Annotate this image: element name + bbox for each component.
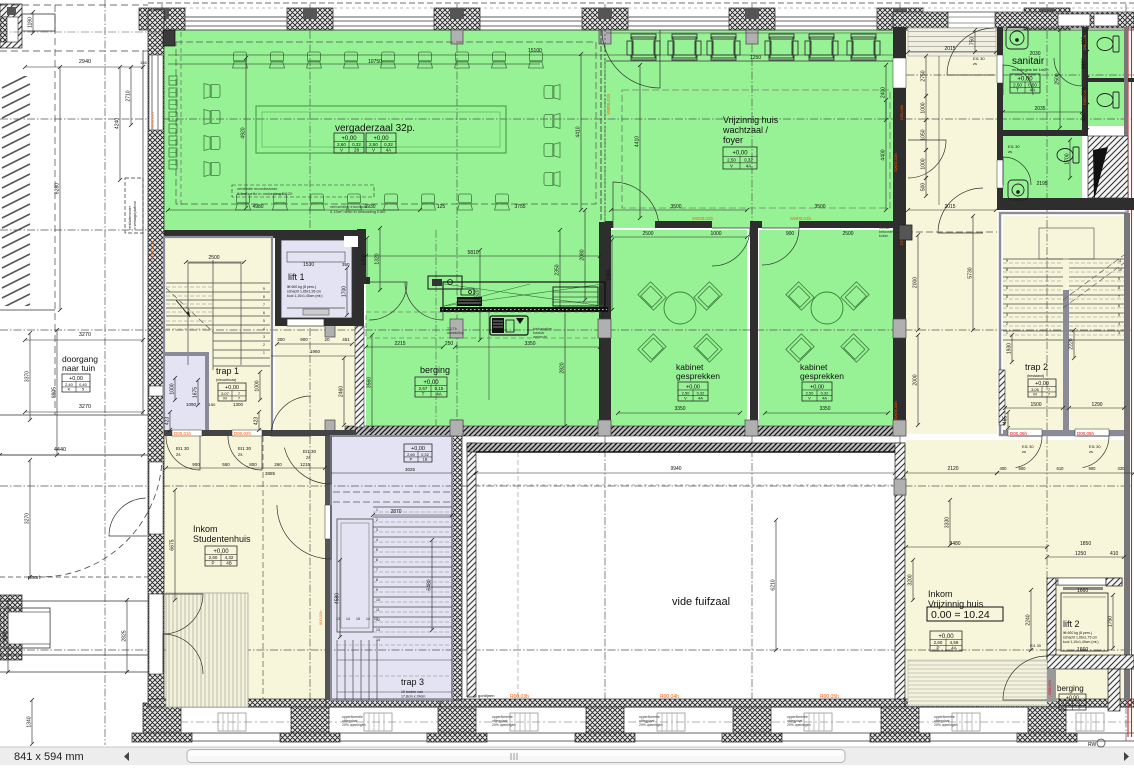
svg-text:10: 10 bbox=[1118, 268, 1122, 272]
svg-text:800: 800 bbox=[249, 462, 257, 467]
svg-text:2015: 2015 bbox=[944, 204, 955, 210]
svg-text:4: 4 bbox=[1006, 304, 1008, 308]
svg-text:1000: 1000 bbox=[170, 383, 176, 394]
svg-text:3270: 3270 bbox=[25, 513, 31, 524]
svg-text:Inkom: Inkom bbox=[193, 524, 218, 534]
svg-text:sanitair: sanitair bbox=[1012, 56, 1045, 67]
svg-text:zs: zs bbox=[306, 455, 311, 460]
svg-text:2015: 2015 bbox=[944, 46, 955, 52]
svg-text:+0,00: +0,00 bbox=[732, 150, 748, 156]
svg-text:610: 610 bbox=[1057, 466, 1065, 471]
svg-text:EI1 30: EI1 30 bbox=[1030, 644, 1041, 648]
svg-text:3: 3 bbox=[263, 335, 265, 339]
svg-text:zs: zs bbox=[176, 452, 181, 457]
svg-text:EI1 30: EI1 30 bbox=[303, 449, 317, 454]
svg-text:2: 2 bbox=[376, 518, 378, 522]
svg-text:2215: 2215 bbox=[394, 341, 405, 347]
svg-text:2940: 2940 bbox=[79, 59, 91, 65]
svg-text:3: 3 bbox=[1118, 331, 1120, 335]
svg-text:(bestaand): (bestaand) bbox=[1027, 374, 1044, 378]
svg-text:28: 28 bbox=[354, 148, 360, 153]
svg-text:2500: 2500 bbox=[642, 231, 653, 237]
svg-text:EI1 30: EI1 30 bbox=[238, 446, 252, 451]
svg-text:1: 1 bbox=[263, 351, 265, 355]
svg-text:330: 330 bbox=[1118, 466, 1126, 471]
svg-text:lift 600 kg (8 pers.): lift 600 kg (8 pers.) bbox=[287, 285, 316, 289]
svg-text:2030: 2030 bbox=[1029, 51, 1040, 57]
svg-text:14: 14 bbox=[376, 638, 380, 642]
svg-text:900: 900 bbox=[1089, 466, 1097, 471]
svg-text:451: 451 bbox=[342, 337, 350, 342]
svg-text:D00,05h: D00,05h bbox=[1077, 431, 1095, 436]
svg-text:in verlaagd plafond: in verlaagd plafond bbox=[133, 201, 137, 230]
svg-text:gesprekken: gesprekken bbox=[676, 371, 720, 381]
svg-text:1930: 1930 bbox=[1007, 343, 1013, 354]
svg-text:1050: 1050 bbox=[921, 129, 927, 140]
svg-text:1700: 1700 bbox=[342, 286, 348, 297]
svg-text:EI1 30: EI1 30 bbox=[176, 446, 190, 451]
svg-text:15: 15 bbox=[356, 617, 360, 621]
svg-text:+0,00: +0,00 bbox=[373, 136, 389, 142]
svg-text:400: 400 bbox=[1082, 37, 1088, 46]
svg-text:8: 8 bbox=[263, 295, 265, 299]
svg-text:0,32: 0,32 bbox=[384, 142, 393, 147]
svg-text:(nieuwbouw): (nieuwbouw) bbox=[216, 378, 236, 382]
svg-text:19 treden van: 19 treden van bbox=[401, 690, 423, 694]
svg-text:+0,00: +0,00 bbox=[938, 634, 954, 640]
svg-text:kooi 1,10x1,40cm (mt.): kooi 1,10x1,40cm (mt.) bbox=[287, 294, 323, 298]
svg-text:3560: 3560 bbox=[367, 377, 373, 388]
svg-text:P: P bbox=[936, 646, 939, 651]
svg-text:zs: zs bbox=[1008, 149, 1012, 154]
svg-text:Inkom: Inkom bbox=[928, 589, 953, 599]
svg-text:423: 423 bbox=[254, 417, 260, 426]
svg-text:SW00,01b: SW00,01b bbox=[790, 216, 812, 221]
svg-text:410: 410 bbox=[1110, 551, 1119, 557]
svg-text:800: 800 bbox=[1082, 87, 1088, 96]
svg-text:13: 13 bbox=[376, 628, 380, 632]
svg-text:3200: 3200 bbox=[908, 574, 914, 585]
svg-text:1500: 1500 bbox=[1030, 402, 1041, 408]
svg-text:900: 900 bbox=[192, 462, 200, 467]
svg-text:R00,04h: R00,04h bbox=[660, 694, 679, 700]
svg-text:20% openingen: 20% openingen bbox=[934, 723, 958, 727]
svg-text:14: 14 bbox=[346, 617, 350, 621]
svg-text:9: 9 bbox=[1006, 259, 1008, 263]
svg-text:poort: poort bbox=[28, 575, 41, 581]
svg-text:1750: 1750 bbox=[1108, 616, 1114, 627]
svg-text:2: 2 bbox=[263, 343, 265, 347]
svg-text:2: 2 bbox=[1006, 322, 1008, 326]
svg-text:4: 4 bbox=[1118, 322, 1120, 326]
svg-text:2035: 2035 bbox=[1034, 106, 1045, 112]
svg-text:D00,02h: D00,02h bbox=[234, 431, 252, 436]
svg-text:465: 465 bbox=[1003, 416, 1009, 425]
svg-text:SW00,04h: SW00,04h bbox=[893, 401, 898, 420]
svg-text:1930: 1930 bbox=[364, 204, 375, 210]
svg-text:1: 1 bbox=[376, 508, 378, 512]
svg-text:1340: 1340 bbox=[27, 716, 33, 727]
svg-text:3: 3 bbox=[376, 528, 378, 532]
svg-text:3370: 3370 bbox=[25, 371, 31, 382]
svg-text:10: 10 bbox=[376, 598, 380, 602]
svg-text:2400: 2400 bbox=[881, 87, 887, 98]
svg-text:900: 900 bbox=[786, 231, 795, 237]
svg-text:2,50: 2,50 bbox=[727, 158, 736, 163]
svg-text:900: 900 bbox=[1019, 466, 1027, 471]
svg-text:+0,00: +0,00 bbox=[341, 136, 357, 142]
svg-text:1000: 1000 bbox=[921, 102, 927, 113]
svg-text:6: 6 bbox=[376, 558, 378, 562]
svg-text:6280: 6280 bbox=[55, 183, 61, 194]
svg-text:D00,03h: D00,03h bbox=[899, 105, 904, 120]
svg-text:900: 900 bbox=[300, 337, 308, 342]
svg-text:156: 156 bbox=[140, 60, 147, 65]
svg-text:0,4m² netto in omkasting EI120: 0,4m² netto in omkasting EI120 bbox=[237, 191, 293, 196]
svg-text:4240: 4240 bbox=[115, 118, 121, 129]
svg-text:7: 7 bbox=[1118, 295, 1120, 299]
svg-text:wachtzaal /: wachtzaal / bbox=[722, 125, 769, 135]
svg-text:D00,07h: D00,07h bbox=[1047, 680, 1052, 695]
svg-text:900,02h: 900,02h bbox=[318, 611, 323, 625]
svg-text:7: 7 bbox=[263, 303, 265, 307]
svg-text:4980: 4980 bbox=[252, 204, 263, 210]
svg-text:20% openingen: 20% openingen bbox=[639, 723, 663, 727]
svg-text:17,8cm x 24cm: 17,8cm x 24cm bbox=[401, 695, 425, 699]
svg-text:V: V bbox=[808, 396, 811, 401]
svg-text:P: P bbox=[410, 457, 413, 462]
svg-text:2500: 2500 bbox=[842, 231, 853, 237]
svg-text:2195: 2195 bbox=[1036, 181, 1047, 187]
svg-text:T: T bbox=[1016, 88, 1019, 93]
svg-text:3350: 3350 bbox=[819, 406, 830, 412]
svg-text:1250: 1250 bbox=[1075, 551, 1086, 557]
svg-text:zs: zs bbox=[1089, 449, 1093, 454]
svg-text:zs: zs bbox=[973, 61, 977, 66]
svg-text:R00,03h: R00,03h bbox=[510, 694, 529, 700]
svg-text:5: 5 bbox=[263, 319, 265, 323]
svg-text:1850: 1850 bbox=[1080, 541, 1091, 547]
svg-text:berging: berging bbox=[1057, 684, 1084, 693]
svg-text:4,32: 4,32 bbox=[225, 555, 234, 560]
svg-text:R00,05h: R00,05h bbox=[820, 694, 839, 700]
svg-text:2350: 2350 bbox=[555, 264, 561, 275]
svg-text:8: 8 bbox=[376, 578, 378, 582]
svg-text:20% openingen: 20% openingen bbox=[342, 723, 366, 727]
svg-text:4440: 4440 bbox=[54, 447, 66, 453]
svg-text:+0,00: +0,00 bbox=[213, 549, 229, 555]
svg-text:berging: berging bbox=[420, 365, 450, 375]
svg-text:4A: 4A bbox=[386, 148, 392, 153]
svg-text:4,59: 4,59 bbox=[950, 640, 959, 645]
svg-text:2500: 2500 bbox=[208, 255, 219, 261]
svg-text:2710: 2710 bbox=[126, 90, 132, 101]
svg-text:300: 300 bbox=[277, 337, 285, 342]
svg-text:7: 7 bbox=[1006, 277, 1008, 281]
svg-text:Vrijzinnig huis: Vrijzinnig huis bbox=[723, 115, 779, 125]
svg-text:400: 400 bbox=[1000, 466, 1008, 471]
svg-text:2820: 2820 bbox=[560, 362, 566, 373]
svg-text:8905: 8905 bbox=[52, 387, 58, 398]
svg-text:1660: 1660 bbox=[1077, 588, 1088, 594]
svg-text:1000: 1000 bbox=[255, 380, 261, 391]
svg-text:ventilatierooster: ventilatierooster bbox=[128, 205, 132, 230]
svg-text:lift 600 kg (8 pers.): lift 600 kg (8 pers.) bbox=[1063, 631, 1092, 635]
svg-text:4: 4 bbox=[263, 327, 265, 331]
svg-text:8: 8 bbox=[1006, 268, 1008, 272]
svg-text:3755: 3755 bbox=[514, 204, 525, 210]
svg-text:2460: 2460 bbox=[339, 386, 345, 397]
svg-text:1960: 1960 bbox=[310, 349, 321, 354]
svg-text:1700: 1700 bbox=[1065, 153, 1071, 164]
svg-text:vide fuifzaal: vide fuifzaal bbox=[672, 596, 730, 608]
svg-text:4920: 4920 bbox=[241, 127, 247, 138]
svg-text:15100: 15100 bbox=[528, 48, 542, 54]
svg-text:1290: 1290 bbox=[1091, 402, 1102, 408]
svg-text:5810: 5810 bbox=[467, 250, 478, 256]
svg-text:lift 2: lift 2 bbox=[1063, 619, 1080, 629]
svg-text:13: 13 bbox=[374, 617, 378, 621]
svg-text:trap 3: trap 3 bbox=[401, 677, 424, 687]
svg-text:0,15: 0,15 bbox=[435, 386, 444, 391]
svg-text:4A: 4A bbox=[746, 164, 752, 169]
svg-text:2620: 2620 bbox=[475, 289, 481, 300]
svg-text:DV00,02h: DV00,02h bbox=[150, 242, 155, 260]
svg-text:aansluiting: aansluiting bbox=[447, 331, 464, 335]
svg-text:1320: 1320 bbox=[375, 253, 381, 264]
svg-text:muurtegels tot 1m2h: muurtegels tot 1m2h bbox=[1012, 67, 1048, 72]
svg-text:2,60: 2,60 bbox=[209, 555, 218, 560]
svg-text:4A: 4A bbox=[436, 392, 442, 397]
svg-text:9940: 9940 bbox=[670, 466, 681, 472]
svg-text:V: V bbox=[340, 148, 343, 153]
svg-text:5: 5 bbox=[1006, 295, 1008, 299]
svg-text:DV00,01h: DV00,01h bbox=[150, 112, 155, 130]
svg-text:schacht 1,66x1,75 cm: schacht 1,66x1,75 cm bbox=[1063, 636, 1097, 640]
svg-text:naar tuin: naar tuin bbox=[62, 363, 95, 373]
svg-text:9: 9 bbox=[1118, 277, 1120, 281]
svg-text:11: 11 bbox=[376, 608, 380, 612]
svg-text:V: V bbox=[730, 164, 733, 169]
svg-text:SW00,02b: SW00,02b bbox=[692, 216, 714, 221]
svg-text:4A: 4A bbox=[698, 396, 703, 401]
svg-text:841 x 594 mm: 841 x 594 mm bbox=[14, 751, 84, 763]
svg-text:T: T bbox=[422, 392, 425, 397]
svg-text:2000: 2000 bbox=[913, 374, 919, 385]
svg-text:6675: 6675 bbox=[170, 539, 176, 550]
svg-text:2120: 2120 bbox=[947, 466, 958, 472]
svg-text:9: 9 bbox=[376, 588, 378, 592]
svg-text:2220: 2220 bbox=[1069, 338, 1075, 349]
svg-text:2080: 2080 bbox=[580, 249, 586, 260]
svg-text:2390: 2390 bbox=[607, 269, 613, 280]
svg-text:kooi 1,10x1,40cm (mt.): kooi 1,10x1,40cm (mt.) bbox=[1063, 640, 1099, 644]
svg-text:1300: 1300 bbox=[233, 402, 244, 407]
svg-text:gesprekken: gesprekken bbox=[800, 371, 844, 381]
svg-text:2,60: 2,60 bbox=[934, 640, 943, 645]
svg-text:125: 125 bbox=[437, 204, 446, 210]
svg-text:4B: 4B bbox=[226, 561, 232, 566]
svg-text:400: 400 bbox=[1082, 113, 1088, 122]
svg-text:3500: 3500 bbox=[670, 204, 681, 210]
svg-text:1320: 1320 bbox=[362, 254, 368, 265]
svg-text:kolom: kolom bbox=[879, 234, 888, 238]
svg-text:M: M bbox=[1033, 392, 1036, 397]
svg-text:2,60: 2,60 bbox=[337, 142, 346, 147]
svg-text:3500: 3500 bbox=[814, 204, 825, 210]
svg-text:VW00,01h: VW00,01h bbox=[606, 93, 611, 115]
svg-text:+0,00: +0,00 bbox=[423, 380, 439, 386]
svg-text:3: 3 bbox=[1006, 313, 1008, 317]
svg-text:1660: 1660 bbox=[1077, 647, 1088, 653]
svg-text:trap 1: trap 1 bbox=[216, 366, 239, 376]
svg-text:D00,06h: D00,06h bbox=[1010, 431, 1028, 436]
svg-text:3025: 3025 bbox=[405, 467, 416, 472]
svg-text:5: 5 bbox=[376, 548, 378, 552]
svg-text:860: 860 bbox=[1082, 61, 1088, 70]
svg-text:zs: zs bbox=[238, 452, 243, 457]
svg-text:3270: 3270 bbox=[79, 404, 91, 410]
svg-text:4A: 4A bbox=[822, 396, 827, 401]
svg-text:550: 550 bbox=[222, 462, 230, 467]
svg-text:0,32: 0,32 bbox=[352, 142, 361, 147]
svg-text:aanrecht: aanrecht bbox=[533, 335, 547, 339]
svg-text:500: 500 bbox=[921, 183, 927, 192]
svg-text:14: 14 bbox=[366, 617, 370, 621]
svg-text:3885: 3885 bbox=[265, 471, 276, 476]
svg-text:2240: 2240 bbox=[1026, 614, 1032, 625]
svg-text:250: 250 bbox=[445, 341, 454, 347]
svg-text:20% openingen: 20% openingen bbox=[492, 723, 516, 727]
svg-text:3270: 3270 bbox=[79, 332, 91, 338]
svg-text:4410: 4410 bbox=[576, 126, 582, 137]
svg-text:2750: 2750 bbox=[921, 70, 927, 81]
svg-text:1000: 1000 bbox=[710, 231, 721, 237]
svg-text:4410: 4410 bbox=[635, 136, 641, 147]
svg-text:3350: 3350 bbox=[674, 406, 685, 412]
svg-text:5730: 5730 bbox=[968, 267, 974, 278]
svg-text:4A: 4A bbox=[951, 646, 957, 651]
svg-text:M: M bbox=[223, 396, 226, 401]
svg-text:20% openingen: 20% openingen bbox=[787, 723, 811, 727]
svg-text:2,67: 2,67 bbox=[419, 386, 428, 391]
svg-text:6480: 6480 bbox=[427, 579, 433, 590]
svg-text:2870: 2870 bbox=[390, 509, 401, 515]
svg-text:4: 4 bbox=[376, 538, 378, 542]
svg-text:8: 8 bbox=[1118, 286, 1120, 290]
svg-text:20: 20 bbox=[324, 337, 330, 342]
svg-text:zs: zs bbox=[1022, 449, 1026, 454]
svg-text:9: 9 bbox=[263, 287, 265, 291]
svg-text:3: 3 bbox=[1078, 706, 1080, 710]
svg-text:3350: 3350 bbox=[524, 341, 535, 347]
svg-text:1: 1 bbox=[1006, 331, 1008, 335]
svg-text:260: 260 bbox=[274, 462, 282, 467]
svg-text:foyer: foyer bbox=[723, 135, 743, 145]
svg-text:13: 13 bbox=[336, 617, 340, 621]
svg-text:6: 6 bbox=[1006, 286, 1008, 290]
svg-text:7: 7 bbox=[376, 568, 378, 572]
svg-text:P: P bbox=[211, 561, 214, 566]
svg-text:1000: 1000 bbox=[921, 158, 927, 169]
svg-text:V: V bbox=[684, 396, 687, 401]
svg-text:lift 1: lift 1 bbox=[288, 272, 305, 282]
svg-text:4580: 4580 bbox=[335, 593, 341, 604]
svg-text:6: 6 bbox=[263, 311, 265, 315]
svg-text:3050: 3050 bbox=[3, 630, 9, 641]
svg-text:V: V bbox=[372, 148, 375, 153]
svg-text:6: 6 bbox=[1118, 304, 1120, 308]
svg-text:schacht 1,65x1,95 cm: schacht 1,65x1,95 cm bbox=[287, 290, 321, 294]
svg-text:150: 150 bbox=[209, 402, 216, 407]
svg-text:0,32: 0,32 bbox=[744, 158, 753, 163]
svg-text:RW: RW bbox=[1088, 742, 1097, 748]
svg-text:vergaderzaal 32p.: vergaderzaal 32p. bbox=[335, 123, 415, 134]
svg-text:1090: 1090 bbox=[186, 402, 197, 407]
svg-text:750: 750 bbox=[970, 37, 976, 46]
svg-text:2825: 2825 bbox=[122, 630, 128, 641]
svg-text:K: K bbox=[68, 387, 71, 392]
svg-text:1B: 1B bbox=[423, 457, 428, 462]
svg-text:trap 2: trap 2 bbox=[1025, 362, 1048, 372]
svg-text:11: 11 bbox=[1118, 259, 1122, 263]
svg-text:2000: 2000 bbox=[913, 277, 919, 288]
svg-text:5: 5 bbox=[1118, 313, 1120, 317]
svg-text:1675: 1675 bbox=[193, 387, 199, 398]
svg-text:1190: 1190 bbox=[28, 17, 34, 28]
svg-text:SW00,03h: SW00,03h bbox=[893, 153, 898, 172]
svg-text:0.00 = 10.24: 0.00 = 10.24 bbox=[931, 609, 990, 621]
svg-text:1215: 1215 bbox=[300, 462, 311, 467]
svg-text:gordijnen: gordijnen bbox=[478, 693, 494, 698]
svg-text:D00,01h: D00,01h bbox=[174, 431, 192, 436]
svg-text:6210: 6210 bbox=[771, 579, 777, 590]
svg-text:Studentenhuis: Studentenhuis bbox=[193, 534, 251, 544]
svg-text:2,50: 2,50 bbox=[369, 142, 378, 147]
svg-text:1530: 1530 bbox=[303, 262, 314, 268]
svg-text:3330: 3330 bbox=[945, 517, 951, 528]
svg-text:423: 423 bbox=[165, 417, 171, 426]
svg-text:1250: 1250 bbox=[750, 55, 761, 61]
svg-text:4400: 4400 bbox=[881, 149, 887, 160]
